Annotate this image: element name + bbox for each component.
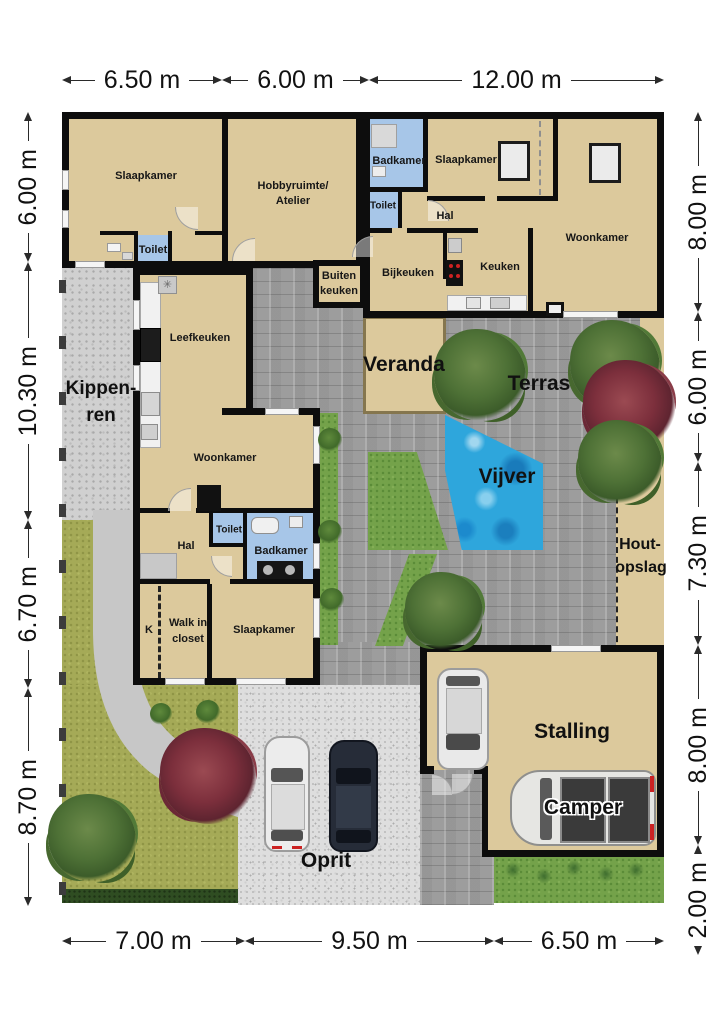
grass-tuft-icon	[536, 868, 552, 884]
wall	[427, 196, 485, 201]
dim-right-1: 8.00 m	[678, 112, 718, 312]
fence-post-icon	[59, 616, 66, 629]
stove-icon	[140, 328, 161, 362]
dim-bottom-1: 7.00 m	[62, 924, 245, 958]
window	[563, 311, 618, 318]
dim-left-4: 8.70 m	[8, 688, 48, 906]
stove-icon	[446, 260, 463, 286]
shrub-icon	[318, 428, 342, 452]
room-label: Buiten	[322, 270, 356, 282]
wall	[528, 228, 533, 311]
sink-icon	[490, 297, 510, 309]
veranda-label: Veranda	[363, 353, 445, 377]
window	[589, 143, 621, 183]
sink-icon	[122, 252, 133, 260]
wall	[482, 770, 488, 857]
dim-bottom-2: 9.50 m	[245, 924, 494, 958]
door-opening	[75, 261, 105, 268]
room-label: Badkamer	[372, 155, 425, 167]
car-icon	[329, 740, 378, 852]
dim-top-1: 6.50 m	[62, 63, 222, 97]
room-label: Leefkeuken	[170, 332, 231, 344]
shrub-icon	[150, 703, 172, 725]
door-opening	[551, 645, 601, 652]
vijver-label: Vijver	[479, 465, 536, 489]
fence-post-icon	[59, 504, 66, 517]
fence-post-icon	[59, 280, 66, 293]
car-windshield	[336, 768, 371, 784]
room-label: Toilet	[216, 525, 242, 536]
dim-top-3: 12.00 m	[369, 63, 664, 97]
room-label: Badkamer	[254, 545, 307, 557]
dim-left-1: 6.00 m	[8, 112, 48, 262]
basin-icon	[263, 565, 273, 575]
fence-post-icon	[59, 448, 66, 461]
oprit-label: Oprit	[301, 849, 351, 873]
fridge-icon	[448, 238, 462, 253]
room-label: Hobbyruimte/	[258, 180, 329, 192]
wall	[209, 543, 247, 547]
window	[133, 300, 140, 330]
shrub-icon	[320, 588, 344, 612]
dim-left-2: 10.30 m	[8, 262, 48, 520]
wall	[230, 579, 313, 584]
room-label: Walk in	[169, 617, 207, 629]
kippenren-label-line1: Kippen-	[66, 378, 137, 400]
fence-post-icon	[59, 784, 66, 797]
vent-icon: ✳	[158, 276, 177, 294]
wall	[195, 231, 222, 235]
dim-right-4: 8.00 m	[678, 645, 718, 845]
window	[62, 210, 69, 228]
wall	[207, 584, 212, 678]
shrub-icon	[318, 520, 342, 544]
room-label: Toilet	[139, 244, 168, 256]
car-windshield	[446, 734, 480, 750]
wall	[370, 228, 392, 233]
kippenren-label-line2: ren	[86, 405, 116, 427]
car-roof	[446, 688, 482, 734]
window	[498, 141, 530, 181]
grass-tuft-icon	[566, 860, 582, 876]
room-label: K	[145, 624, 153, 636]
stalling-label: Stalling	[534, 720, 610, 744]
car-rear-window	[446, 676, 480, 686]
shower-icon	[371, 124, 397, 148]
window	[313, 598, 320, 638]
roof-line	[539, 121, 541, 195]
room-label: Hal	[436, 210, 453, 222]
grass-tuft-icon	[598, 866, 614, 882]
hedge	[62, 889, 238, 903]
window	[236, 678, 286, 685]
camper-taillight	[650, 776, 654, 792]
room-label: Woonkamer	[194, 452, 257, 464]
wall	[100, 231, 135, 235]
car-rear-window	[336, 830, 371, 843]
wall	[243, 513, 247, 579]
wall	[209, 513, 213, 543]
wall	[553, 119, 558, 201]
fence-post-icon	[59, 336, 66, 349]
sink-icon	[289, 516, 303, 528]
dim-right-5: 2.00 m	[678, 845, 718, 905]
dim-bottom-3: 6.50 m	[494, 924, 664, 958]
dim-left-3: 6.70 m	[8, 520, 48, 688]
room-label: Slaapkamer	[115, 170, 177, 182]
wall	[140, 579, 210, 584]
floor-plan: Slaapkamer Hobbyruimte/ Atelier Toilet B…	[0, 0, 724, 1024]
double-sink-counter	[257, 561, 303, 579]
window	[165, 678, 205, 685]
car-roof	[271, 784, 305, 830]
wall	[168, 231, 172, 261]
houtopslag-label-line1: Hout-	[619, 536, 661, 554]
tree-icon	[48, 794, 136, 882]
tree-icon	[160, 728, 256, 824]
car-rear-window	[271, 830, 303, 841]
car-icon	[437, 668, 489, 770]
room-label: Slaapkamer	[233, 624, 295, 636]
closet-partition	[158, 586, 161, 678]
sink-icon	[372, 166, 386, 177]
fireplace-icon	[197, 485, 221, 511]
camper-label: Camper	[544, 796, 622, 820]
window	[62, 170, 69, 190]
dishwasher-icon	[141, 424, 158, 440]
wall	[420, 766, 434, 774]
sink-icon	[466, 297, 481, 309]
room-label: Atelier	[276, 195, 310, 207]
stair-mat	[140, 553, 177, 579]
kitchen-counter	[447, 295, 527, 311]
wall	[423, 119, 428, 187]
buiten-keuken-box	[313, 260, 366, 308]
door-mat	[546, 302, 564, 316]
room-label: Bijkeuken	[382, 267, 434, 279]
dim-top-2: 6.00 m	[222, 63, 369, 97]
tree-icon	[578, 420, 662, 504]
room-label: Toilet	[370, 201, 396, 212]
wall	[222, 119, 228, 261]
wall	[497, 196, 556, 201]
camper-taillight	[650, 824, 654, 840]
room-label: Slaapkamer	[435, 154, 497, 166]
wall	[398, 192, 402, 228]
room-label: Keuken	[480, 261, 520, 273]
fence-post-icon	[59, 672, 66, 685]
houtopslag-label-line2: opslag	[615, 559, 667, 577]
room-label: closet	[172, 633, 204, 645]
sink-icon	[141, 392, 160, 416]
car-roof	[336, 786, 371, 828]
shrub-icon	[196, 700, 220, 724]
car-windshield	[271, 768, 303, 782]
terras-label: Terras	[508, 372, 571, 396]
room-label: Hal	[177, 540, 194, 552]
sink-icon	[107, 243, 121, 252]
car-icon	[264, 736, 310, 852]
grass-tuft-icon	[505, 862, 521, 878]
wall	[140, 508, 170, 513]
window	[265, 408, 299, 415]
room-label: keuken	[320, 285, 358, 297]
bathtub-icon	[251, 517, 279, 534]
fence-post-icon	[59, 728, 66, 741]
window	[313, 543, 320, 569]
room-label: Woonkamer	[566, 232, 629, 244]
grass-tuft-icon	[628, 862, 644, 878]
tree-icon	[405, 572, 483, 650]
burner-icon	[449, 264, 453, 268]
fence-post-icon	[59, 882, 66, 895]
dim-right-2: 6.00 m	[678, 312, 718, 462]
fence-post-icon	[59, 560, 66, 573]
car-taillight	[272, 846, 282, 849]
dim-right-3: 7.30 m	[678, 462, 718, 645]
wall	[134, 231, 138, 261]
